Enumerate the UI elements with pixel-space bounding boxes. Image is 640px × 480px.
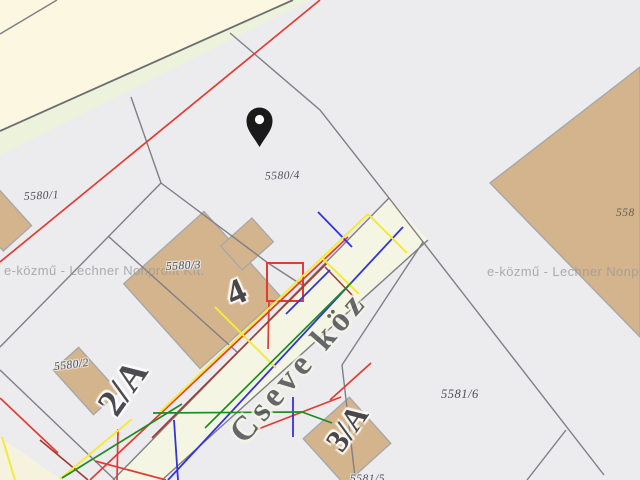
building-top-right xyxy=(490,67,640,337)
map-viewport[interactable]: e-közmű - Lechner Nonprofit Kft. e-közmű… xyxy=(0,0,640,480)
location-pin-icon[interactable] xyxy=(247,108,273,148)
parcel-label-5580-4: 5580/4 xyxy=(265,169,300,182)
map-canvas xyxy=(0,0,640,480)
watermark-right: e-közmű - Lechner Nonprofit Kft. xyxy=(487,264,640,279)
parcel-label-5581-5-partial: 5581/5 xyxy=(350,473,385,480)
parcel-label-5581-6: 5581/6 xyxy=(441,387,479,402)
parcel-label-5580-1: 5580/1 xyxy=(24,189,60,203)
parcel-label-5580-3: 5580/3 xyxy=(166,259,202,273)
parcel-label-558-partial: 558 xyxy=(616,207,635,219)
